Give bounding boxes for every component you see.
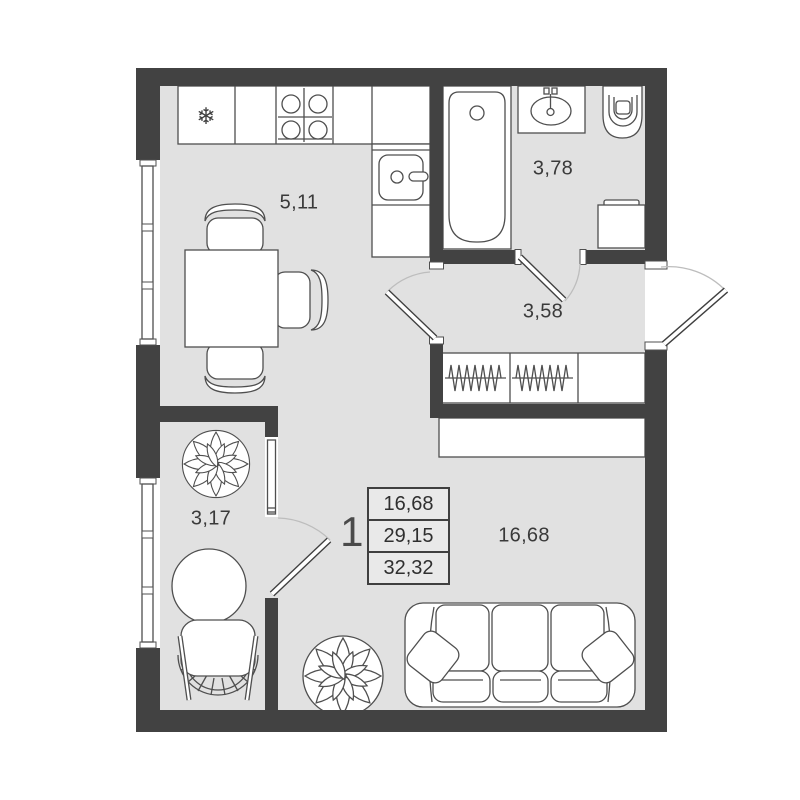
room-label-closet: 3,17	[191, 508, 231, 531]
sideboard	[439, 418, 645, 457]
room-label-bathroom: 3,78	[533, 158, 573, 181]
snowflake-icon: ❄	[196, 103, 215, 129]
floorplan-canvas: ❄	[0, 0, 800, 800]
dining-table	[185, 250, 278, 347]
bathtub	[443, 86, 511, 249]
floorplan-page: ❄	[0, 0, 800, 800]
glazed-partition	[265, 437, 278, 517]
round-table	[172, 549, 246, 623]
sofa	[404, 603, 638, 707]
wardrobe	[441, 353, 645, 403]
door-entrance	[661, 267, 726, 344]
washbasin	[518, 86, 585, 133]
area-row-total: 32,32	[369, 551, 448, 583]
window-kitchen	[136, 160, 160, 345]
room-label-kitchen: 5,11	[280, 192, 319, 215]
plant-icon	[182, 430, 249, 497]
toilet	[603, 86, 642, 138]
washing-machine	[598, 200, 645, 248]
entrance-opening	[645, 268, 667, 343]
plant-icon	[303, 636, 383, 716]
area-row-living: 16,68	[369, 489, 448, 519]
room-label-living: 16,68	[498, 525, 550, 548]
area-row-apartment: 29,15	[369, 519, 448, 551]
window-closet	[136, 478, 160, 648]
kitchen-sink	[379, 155, 428, 200]
area-table: 16,68 29,15 32,32	[367, 487, 450, 585]
unit-number: 1	[340, 508, 364, 556]
room-label-hallway: 3,58	[523, 301, 563, 324]
